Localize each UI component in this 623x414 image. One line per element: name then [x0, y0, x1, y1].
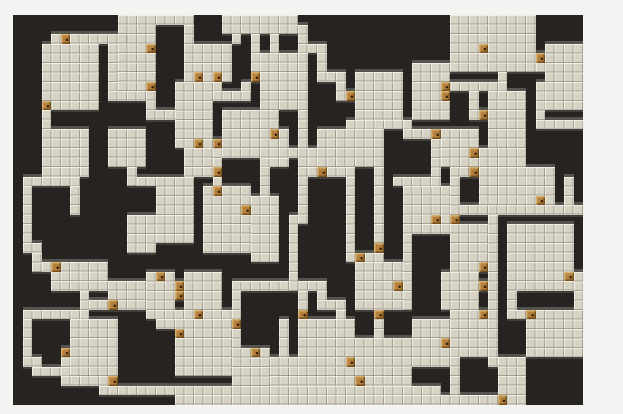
- corridor-floor[interactable]: [146, 310, 165, 320]
- corridor-floor[interactable]: [450, 177, 460, 215]
- wall-shadow: [469, 120, 479, 122]
- door-tile[interactable]: [317, 167, 327, 177]
- wall-shadow: [203, 253, 251, 255]
- door-tile[interactable]: [146, 44, 156, 54]
- corridor-floor[interactable]: [156, 15, 194, 25]
- corridor-floor[interactable]: [336, 82, 346, 101]
- door-tile[interactable]: [479, 44, 489, 54]
- corridor-floor[interactable]: [165, 310, 241, 320]
- wall-shadow: [507, 319, 526, 321]
- corridor-floor[interactable]: [213, 91, 251, 101]
- corridor-floor[interactable]: [137, 177, 156, 187]
- corridor-floor[interactable]: [574, 272, 584, 310]
- wall-shadow: [488, 72, 536, 74]
- wall-shadow: [536, 129, 584, 131]
- door-tile[interactable]: [469, 167, 479, 177]
- room-floor[interactable]: [355, 72, 403, 120]
- corridor-floor[interactable]: [184, 25, 194, 44]
- corridor-floor[interactable]: [222, 15, 260, 34]
- room-floor[interactable]: [298, 319, 355, 386]
- dungeon-screen: [0, 0, 623, 414]
- corridor-floor[interactable]: [317, 300, 346, 310]
- corridor-floor[interactable]: [108, 44, 118, 92]
- door-tile[interactable]: [355, 253, 365, 263]
- door-tile[interactable]: [441, 82, 451, 92]
- corridor-floor[interactable]: [374, 167, 384, 253]
- corridor-floor[interactable]: [156, 319, 175, 329]
- corridor-floor[interactable]: [298, 44, 327, 54]
- wall-shadow: [127, 186, 137, 188]
- wall-shadow: [137, 186, 156, 188]
- door-tile[interactable]: [479, 281, 489, 291]
- door-tile[interactable]: [346, 91, 356, 101]
- corridor-floor[interactable]: [23, 310, 90, 320]
- door-tile[interactable]: [42, 101, 52, 111]
- corridor-floor[interactable]: [175, 395, 527, 405]
- wall-shadow: [450, 215, 583, 217]
- room-floor[interactable]: [441, 272, 479, 310]
- corridor-floor[interactable]: [23, 319, 33, 357]
- wall-shadow: [232, 44, 242, 46]
- door-tile[interactable]: [479, 262, 489, 272]
- corridor-floor[interactable]: [336, 310, 346, 320]
- corridor-floor[interactable]: [232, 281, 327, 291]
- room-floor[interactable]: [251, 196, 280, 263]
- room-floor[interactable]: [203, 186, 251, 253]
- door-tile[interactable]: [450, 215, 460, 225]
- wall-shadow: [213, 101, 251, 103]
- wall-shadow: [108, 310, 146, 312]
- wall-shadow: [251, 262, 280, 264]
- wall-shadow: [488, 367, 498, 369]
- corridor-floor[interactable]: [298, 110, 308, 224]
- wall-shadow: [479, 291, 489, 293]
- room-floor[interactable]: [488, 91, 526, 148]
- corridor-floor[interactable]: [450, 205, 583, 215]
- wall-shadow: [156, 243, 194, 245]
- corridor-floor[interactable]: [127, 167, 137, 186]
- door-tile[interactable]: [146, 82, 156, 92]
- corridor-floor[interactable]: [99, 386, 441, 396]
- door-tile[interactable]: [536, 53, 546, 63]
- wall-shadow: [412, 367, 450, 369]
- wall-shadow: [412, 120, 450, 122]
- door-tile[interactable]: [213, 139, 223, 149]
- wall-shadow: [536, 72, 546, 74]
- room-floor[interactable]: [260, 53, 308, 110]
- corridor-floor[interactable]: [260, 167, 270, 196]
- door-tile[interactable]: [232, 319, 242, 329]
- wall-shadow: [156, 329, 175, 331]
- wall-shadow: [260, 34, 298, 36]
- room-floor[interactable]: [42, 129, 90, 177]
- door-tile[interactable]: [355, 376, 365, 386]
- door-tile[interactable]: [298, 310, 308, 320]
- corridor-floor[interactable]: [289, 215, 299, 291]
- wall-shadow: [403, 310, 413, 312]
- wall-shadow: [298, 224, 308, 226]
- wall-shadow: [89, 310, 108, 312]
- corridor-floor[interactable]: [403, 234, 413, 310]
- door-tile[interactable]: [270, 129, 280, 139]
- door-tile[interactable]: [108, 376, 118, 386]
- corridor-floor[interactable]: [507, 281, 517, 310]
- wall-shadow: [450, 72, 488, 74]
- corridor-floor[interactable]: [279, 319, 289, 357]
- corridor-floor[interactable]: [241, 82, 251, 92]
- door-tile[interactable]: [213, 72, 223, 82]
- door-tile[interactable]: [175, 281, 185, 291]
- corridor-floor[interactable]: [488, 357, 498, 367]
- wall-shadow: [507, 291, 574, 293]
- room-floor[interactable]: [70, 319, 118, 376]
- corridor-floor[interactable]: [469, 91, 479, 120]
- corridor-floor[interactable]: [80, 291, 90, 310]
- corridor-floor[interactable]: [32, 367, 61, 377]
- wall-shadow: [346, 101, 356, 103]
- corridor-floor[interactable]: [279, 129, 289, 148]
- corridor-floor[interactable]: [536, 82, 546, 120]
- room-floor[interactable]: [184, 272, 222, 310]
- corridor-floor[interactable]: [23, 243, 42, 253]
- room-floor[interactable]: [118, 15, 156, 91]
- room-floor[interactable]: [545, 44, 583, 111]
- door-tile[interactable]: [431, 215, 441, 225]
- wall-shadow: [42, 272, 52, 274]
- corridor-floor[interactable]: [346, 177, 356, 253]
- corridor-floor[interactable]: [213, 82, 223, 92]
- door-tile[interactable]: [441, 91, 451, 101]
- corridor-floor[interactable]: [260, 15, 298, 34]
- corridor-floor[interactable]: [564, 177, 574, 206]
- room-floor[interactable]: [403, 186, 451, 224]
- corridor-floor[interactable]: [450, 357, 460, 395]
- wall-shadow: [146, 120, 175, 122]
- dungeon-map: [13, 15, 583, 405]
- door-tile[interactable]: [241, 205, 251, 215]
- corridor-floor[interactable]: [308, 148, 318, 167]
- corridor-floor[interactable]: [308, 167, 356, 177]
- door-tile[interactable]: [175, 291, 185, 301]
- corridor-floor[interactable]: [317, 72, 346, 82]
- door-tile[interactable]: [61, 348, 71, 358]
- corridor-floor[interactable]: [32, 253, 42, 272]
- room-floor[interactable]: [317, 129, 384, 167]
- corridor-floor[interactable]: [346, 253, 384, 263]
- door-tile[interactable]: [108, 300, 118, 310]
- door-tile[interactable]: [564, 272, 574, 282]
- wall-shadow: [336, 101, 346, 103]
- room-floor[interactable]: [127, 215, 156, 253]
- wall-shadow: [545, 110, 583, 112]
- corridor-floor[interactable]: [270, 34, 280, 53]
- corridor-floor[interactable]: [507, 310, 526, 320]
- door-tile[interactable]: [526, 310, 536, 320]
- corridor-floor[interactable]: [70, 186, 80, 215]
- door-tile[interactable]: [374, 243, 384, 253]
- door-tile[interactable]: [194, 139, 204, 149]
- door-tile[interactable]: [479, 110, 489, 120]
- room-floor[interactable]: [108, 129, 146, 167]
- wall-shadow: [32, 376, 61, 378]
- door-tile[interactable]: [213, 186, 223, 196]
- wall-shadow: [232, 291, 327, 293]
- corridor-floor[interactable]: [403, 224, 451, 234]
- door-tile[interactable]: [51, 262, 61, 272]
- corridor-floor[interactable]: [536, 120, 584, 130]
- wall-shadow: [251, 82, 261, 84]
- door-tile[interactable]: [469, 148, 479, 158]
- corridor-floor[interactable]: [317, 53, 327, 72]
- door-tile[interactable]: [441, 338, 451, 348]
- corridor-floor[interactable]: [232, 34, 242, 44]
- door-tile[interactable]: [251, 348, 261, 358]
- door-tile[interactable]: [213, 167, 223, 177]
- room-floor[interactable]: [156, 177, 194, 244]
- room-floor[interactable]: [184, 44, 232, 82]
- wall-shadow: [127, 253, 156, 255]
- corridor-floor[interactable]: [346, 120, 403, 130]
- wall-shadow: [175, 376, 232, 378]
- door-tile[interactable]: [175, 329, 185, 339]
- door-tile[interactable]: [393, 281, 403, 291]
- door-tile[interactable]: [251, 72, 261, 82]
- corridor-floor[interactable]: [146, 110, 175, 120]
- corridor-floor[interactable]: [393, 177, 441, 187]
- room-floor[interactable]: [184, 148, 213, 177]
- door-tile[interactable]: [194, 72, 204, 82]
- corridor-floor[interactable]: [42, 262, 52, 272]
- door-tile[interactable]: [498, 395, 508, 405]
- door-tile[interactable]: [156, 272, 166, 282]
- door-tile[interactable]: [374, 310, 384, 320]
- door-tile[interactable]: [431, 129, 441, 139]
- corridor-floor[interactable]: [42, 110, 52, 129]
- door-tile[interactable]: [479, 310, 489, 320]
- corridor-floor[interactable]: [23, 357, 42, 367]
- wall-shadow: [175, 300, 185, 302]
- door-tile[interactable]: [536, 196, 546, 206]
- wall-shadow: [32, 272, 42, 274]
- corridor-floor[interactable]: [441, 82, 508, 92]
- wall-shadow: [526, 357, 583, 359]
- wall-shadow: [289, 291, 299, 293]
- door-tile[interactable]: [346, 357, 356, 367]
- room-floor[interactable]: [479, 148, 527, 205]
- corridor-floor[interactable]: [89, 300, 108, 310]
- corridor-floor[interactable]: [23, 177, 80, 187]
- corridor-floor[interactable]: [498, 72, 508, 82]
- wall-shadow: [479, 120, 489, 122]
- door-tile[interactable]: [61, 34, 71, 44]
- door-tile[interactable]: [194, 310, 204, 320]
- corridor-floor[interactable]: [488, 215, 498, 358]
- room-floor[interactable]: [488, 15, 536, 72]
- corridor-floor[interactable]: [431, 139, 441, 177]
- corridor-floor[interactable]: [146, 91, 156, 110]
- wall-shadow: [70, 215, 80, 217]
- corridor-floor[interactable]: [260, 158, 289, 168]
